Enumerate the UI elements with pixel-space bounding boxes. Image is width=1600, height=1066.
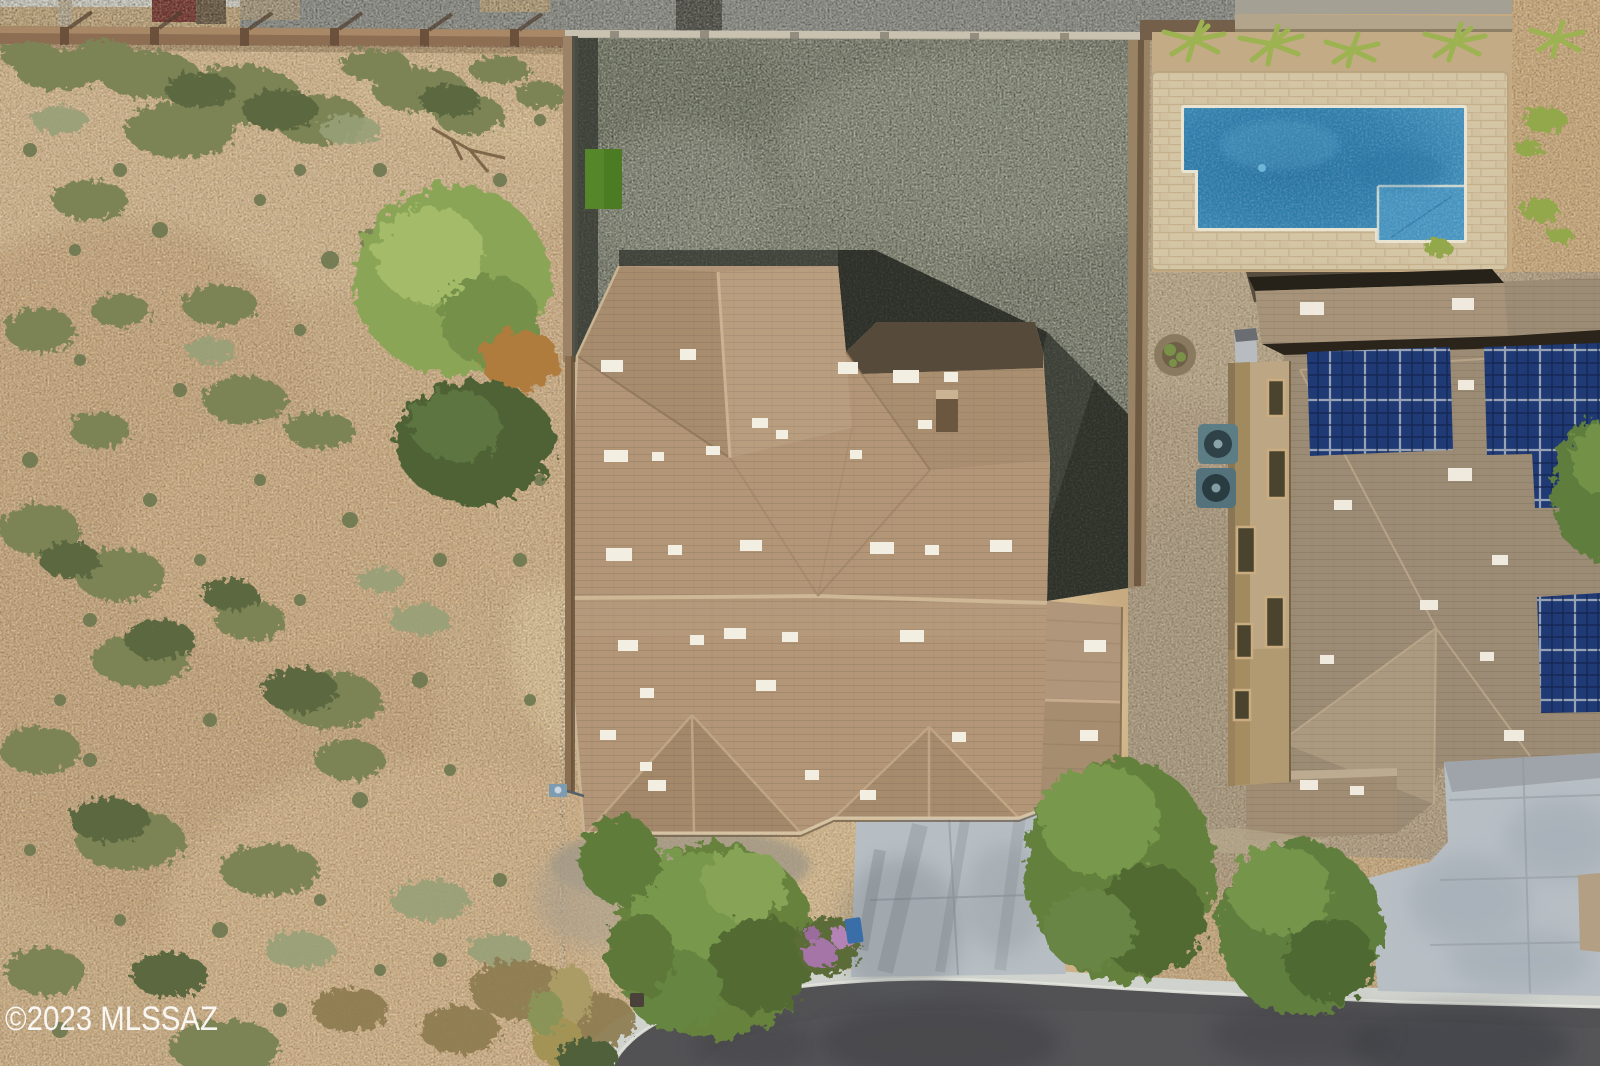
- svg-text:©2023 MLSSAZ: ©2023 MLSSAZ: [5, 1000, 218, 1038]
